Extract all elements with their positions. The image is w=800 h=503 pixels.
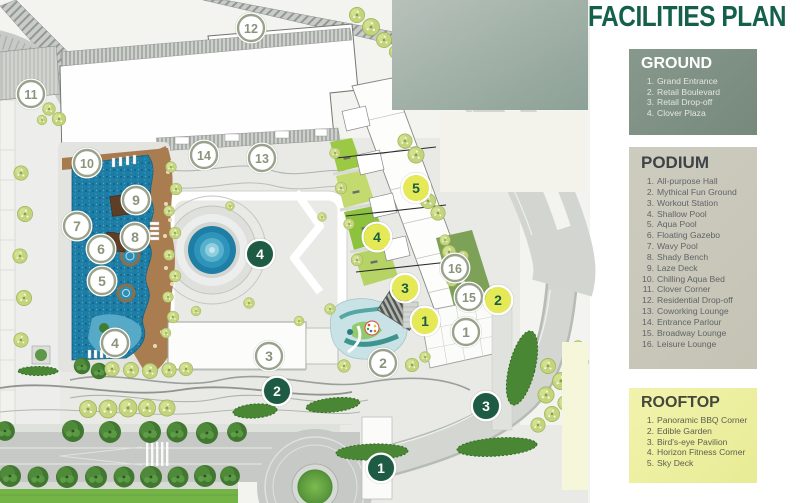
garden-tree-icon: [138, 399, 155, 416]
street-tree-icon: [62, 420, 84, 442]
retail-frontage: [0, 100, 15, 430]
legend-item-number: 5.: [639, 219, 654, 230]
legend-item: 2.Retail Boulevard: [639, 87, 749, 98]
marker-podium-5: 5: [86, 265, 117, 296]
legend-item-label: Floating Gazebo: [657, 230, 720, 241]
svg-text:9: 9: [132, 192, 140, 208]
garden-tree-icon: [162, 363, 176, 377]
legend-item-label: Shady Bench: [657, 252, 708, 263]
garden-tree-icon: [13, 249, 27, 263]
garden-tree-icon: [244, 298, 255, 309]
garden-tree-icon: [166, 162, 177, 173]
garden-tree-icon: [362, 18, 379, 35]
garden-tree-icon: [338, 360, 351, 373]
marker-ground-1: 1: [365, 452, 396, 483]
garden-pavilion: [32, 346, 50, 364]
garden-tree-icon: [119, 399, 137, 417]
svg-text:14: 14: [197, 149, 211, 163]
legend-item: 9.Laze Deck: [639, 263, 749, 274]
street-tree-icon: [227, 422, 247, 442]
legend-item: 10.Chilling Aqua Bed: [639, 274, 749, 285]
legend-item: 14.Entrance Parlour: [639, 317, 749, 328]
street-tree-icon: [167, 422, 188, 443]
legend-item-number: 1.: [639, 76, 654, 87]
svg-text:10: 10: [80, 157, 94, 171]
legend-item: 5.Sky Deck: [639, 458, 749, 469]
marker-rooftop-2: 2: [482, 284, 513, 315]
legend-item-number: 1.: [639, 176, 654, 187]
facilities-plan-page: 12111014139786543161512423154312 FACILIT…: [0, 0, 800, 503]
legend-item-number: 2.: [639, 187, 654, 198]
garden-tree-icon: [159, 400, 175, 416]
street-tree-icon: [0, 465, 21, 487]
marker-ground-2: 2: [261, 375, 292, 406]
marker-podium-14: 14: [188, 139, 219, 170]
garden-tree-icon: [17, 206, 32, 221]
spa-pool: [118, 285, 134, 301]
legend-item-number: 11.: [639, 284, 654, 295]
marker-podium-4: 4: [99, 327, 130, 358]
garden-tree-icon: [163, 292, 174, 303]
legend-item-number: 3.: [639, 198, 654, 209]
marker-podium-15: 15: [453, 281, 484, 312]
legend-item-number: 2.: [639, 426, 654, 437]
garden-tree-icon: [164, 206, 175, 217]
street-tree-icon: [85, 466, 107, 488]
legend-item-label: Broadway Lounge: [657, 328, 726, 339]
marker-ground-3: 3: [470, 390, 501, 421]
svg-text:12: 12: [244, 22, 258, 36]
marker-podium-11: 11: [15, 78, 46, 109]
marker-podium-16: 16: [439, 252, 470, 283]
marker-podium-7: 7: [61, 210, 92, 241]
svg-text:2: 2: [273, 383, 281, 399]
legend-item-label: Clover Corner: [657, 284, 711, 295]
legend-item-number: 14.: [639, 317, 654, 328]
legend-item-number: 7.: [639, 241, 654, 252]
marker-rooftop-4: 4: [361, 221, 392, 252]
legend-item-label: All-purpose Hall: [657, 176, 718, 187]
garden-tree-icon: [540, 358, 555, 373]
garden-tree-icon: [170, 183, 182, 195]
page-title: FACILITIES PLAN: [588, 1, 786, 34]
marker-rooftop-1: 1: [409, 305, 440, 336]
garden-tree-icon: [105, 362, 119, 376]
canopy-roof: [168, 322, 338, 370]
marker-podium-9: 9: [120, 184, 151, 215]
garden-tree-icon: [344, 219, 355, 230]
svg-text:5: 5: [98, 273, 106, 289]
legend-item-number: 4.: [639, 209, 654, 220]
svg-text:15: 15: [462, 291, 476, 305]
legend-item-number: 3.: [639, 437, 654, 448]
marker-podium-2: 2: [367, 347, 398, 378]
marker-podium-8: 8: [119, 221, 150, 252]
central-fountain: [168, 206, 256, 294]
legend-item-label: Edible Garden: [657, 426, 712, 437]
legend-item-number: 4.: [639, 447, 654, 458]
street-tree-icon: [140, 466, 162, 488]
marker-podium-6: 6: [85, 233, 116, 264]
legend-item-label: Laze Deck: [657, 263, 698, 274]
site-plan-map: 12111014139786543161512423154312: [0, 0, 620, 503]
garden-tree-icon: [538, 387, 554, 403]
svg-text:5: 5: [412, 180, 420, 196]
legend-rooftop-list: 1.Panoramic BBQ Corner2.Edible Garden3.B…: [639, 415, 749, 469]
svg-text:11: 11: [24, 88, 37, 102]
marker-rooftop-5: 5: [400, 172, 431, 203]
legend-item-label: Chilling Aqua Bed: [657, 274, 725, 285]
street-tree-icon: [28, 467, 49, 488]
legend-item: 3.Bird's-eye Pavilion: [639, 437, 749, 448]
legend-item-label: Panoramic BBQ Corner: [657, 415, 747, 426]
legend-item: 1.All-purpose Hall: [639, 176, 749, 187]
street-tree-icon: [139, 421, 161, 443]
garden-tree-icon: [52, 112, 66, 126]
marker-rooftop-3: 3: [389, 272, 420, 303]
street-tree-icon: [74, 358, 91, 375]
garden-tree-icon: [294, 316, 304, 326]
street-tree-icon: [194, 465, 216, 487]
svg-text:4: 4: [373, 229, 381, 245]
garden-tree-icon: [349, 7, 364, 22]
garden-tree-icon: [335, 182, 347, 194]
marker-podium-3: 3: [253, 340, 284, 371]
garden-tree-icon: [398, 134, 412, 148]
garden-tree-icon: [14, 333, 28, 347]
garden-tree-icon: [123, 362, 138, 377]
svg-text:3: 3: [401, 280, 409, 296]
legend-podium-title: PODIUM: [641, 153, 749, 173]
legend-item: 13.Coworking Lounge: [639, 306, 749, 317]
svg-text:4: 4: [111, 335, 119, 351]
svg-text:16: 16: [448, 262, 462, 276]
legend-rooftop-title: ROOFTOP: [641, 394, 749, 412]
garden-tree-icon: [179, 362, 193, 376]
garden-tree-icon: [405, 358, 419, 372]
legend-item: 11.Clover Corner: [639, 284, 749, 295]
svg-text:2: 2: [494, 292, 502, 308]
legend-item: 5.Aqua Pool: [639, 219, 749, 230]
legend-ground-title: GROUND: [641, 55, 749, 73]
garden-tree-icon: [544, 406, 559, 421]
legend-item-number: 10.: [639, 274, 654, 285]
grass-verge: [0, 489, 238, 503]
legend-item-label: Retail Boulevard: [657, 87, 720, 98]
legend-item-label: Entrance Parlour: [657, 317, 722, 328]
legend-item-number: 12.: [639, 295, 654, 306]
garden-tree-icon: [226, 202, 235, 211]
garden-tree-icon: [43, 103, 56, 116]
legend-item-label: Workout Station: [657, 198, 718, 209]
legend-item-label: Retail Drop-off: [657, 97, 712, 108]
legend-ground-list: 1.Grand Entrance2.Retail Boulevard3.Reta…: [639, 76, 749, 118]
legend-item-label: Horizon Fitness Corner: [657, 447, 745, 458]
svg-text:1: 1: [377, 460, 385, 476]
legend-item-label: Mythical Fun Ground: [657, 187, 737, 198]
svg-text:7: 7: [73, 218, 81, 234]
garden-tree-icon: [167, 311, 179, 323]
legend-item-number: 6.: [639, 230, 654, 241]
legend-item-number: 3.: [639, 97, 654, 108]
garden-tree-icon: [330, 148, 341, 159]
legend-item: 15.Broadway Lounge: [639, 328, 749, 339]
garden-tree-icon: [191, 306, 201, 316]
street-tree-icon: [168, 467, 189, 488]
garden-tree-icon: [531, 418, 545, 432]
gradient-band: [392, 0, 588, 110]
garden-tree-icon: [164, 250, 175, 261]
legend-item: 8.Shady Bench: [639, 252, 749, 263]
svg-text:3: 3: [265, 348, 273, 364]
legend-item: 16.Leisure Lounge: [639, 339, 749, 350]
legend-item: 4.Shallow Pool: [639, 209, 749, 220]
svg-text:4: 4: [256, 246, 264, 262]
marker-podium-12: 12: [235, 12, 266, 43]
marker-podium-10: 10: [71, 147, 102, 178]
legend-rooftop: ROOFTOP 1.Panoramic BBQ Corner2.Edible G…: [629, 388, 757, 483]
svg-text:2: 2: [379, 355, 387, 371]
marker-podium-13: 13: [246, 142, 277, 173]
legend-item-number: 8.: [639, 252, 654, 263]
svg-text:1: 1: [421, 313, 429, 329]
legend-item-number: 4.: [639, 108, 654, 119]
legend-item-number: 9.: [639, 263, 654, 274]
garden-tree-icon: [325, 304, 336, 315]
legend-item: 4.Clover Plaza: [639, 108, 749, 119]
legend-podium: PODIUM 1.All-purpose Hall2.Mythical Fun …: [629, 147, 757, 369]
legend-item-label: Aqua Pool: [657, 219, 697, 230]
legend-item-number: 15.: [639, 328, 654, 339]
legend-item: 1.Grand Entrance: [639, 76, 749, 87]
garden-tree-icon: [408, 147, 424, 163]
garden-tree-icon: [79, 400, 96, 417]
legend-item: 1.Panoramic BBQ Corner: [639, 415, 749, 426]
legend-item: 3.Workout Station: [639, 198, 749, 209]
garden-tree-icon: [142, 363, 157, 378]
legend-item: 7.Wavy Pool: [639, 241, 749, 252]
legend-item: 2.Mythical Fun Ground: [639, 187, 749, 198]
legend-item-label: Shallow Pool: [657, 209, 707, 220]
legend-item-number: 1.: [639, 415, 654, 426]
legend-item-number: 16.: [639, 339, 654, 350]
legend-item-label: Leisure Lounge: [657, 339, 716, 350]
legend-item: 4.Horizon Fitness Corner: [639, 447, 749, 458]
marker-ground-4: 4: [244, 238, 275, 269]
legend-item: 12.Residential Drop-off: [639, 295, 749, 306]
garden-tree-icon: [169, 270, 181, 282]
street-tree-icon: [220, 466, 240, 486]
svg-text:6: 6: [97, 241, 105, 257]
legend-item-number: 5.: [639, 458, 654, 469]
legend-podium-list: 1.All-purpose Hall2.Mythical Fun Ground3…: [639, 176, 749, 350]
legend-item-label: Grand Entrance: [657, 76, 718, 87]
legend-item: 3.Retail Drop-off: [639, 97, 749, 108]
legend-item-label: Bird's-eye Pavilion: [657, 437, 727, 448]
garden-tree-icon: [431, 206, 445, 220]
street-tree-icon: [56, 466, 78, 488]
garden-tree-icon: [420, 352, 431, 363]
legend-ground: GROUND 1.Grand Entrance2.Retail Boulevar…: [629, 49, 757, 135]
garden-tree-icon: [169, 227, 181, 239]
legend-item-label: Sky Deck: [657, 458, 693, 469]
svg-text:8: 8: [131, 229, 139, 245]
legend-item: 6.Floating Gazebo: [639, 230, 749, 241]
garden-tree-icon: [99, 400, 117, 418]
svg-text:1: 1: [462, 324, 470, 340]
garden-tree-icon: [376, 32, 391, 47]
legend-item-label: Residential Drop-off: [657, 295, 733, 306]
garden-tree-icon: [351, 254, 363, 266]
garden-tree-icon: [14, 166, 28, 180]
svg-text:13: 13: [255, 152, 269, 166]
garden-tree-icon: [16, 290, 31, 305]
legend-item-number: 13.: [639, 306, 654, 317]
carousel: [365, 321, 379, 335]
legend-item: 2.Edible Garden: [639, 426, 749, 437]
garden-tree-icon: [440, 235, 451, 246]
legend-item-label: Clover Plaza: [657, 108, 706, 119]
garden-tree-icon: [37, 115, 47, 125]
garden-tree-icon: [318, 213, 327, 222]
svg-text:3: 3: [482, 398, 490, 414]
legend-item-label: Wavy Pool: [657, 241, 698, 252]
legend-item-label: Coworking Lounge: [657, 306, 729, 317]
legend-item-number: 2.: [639, 87, 654, 98]
marker-podium-1: 1: [450, 316, 481, 347]
street-tree-icon: [196, 422, 218, 444]
street-tree-icon: [114, 467, 135, 488]
street-tree-icon: [99, 421, 121, 443]
garden-tree-icon: [161, 328, 171, 338]
